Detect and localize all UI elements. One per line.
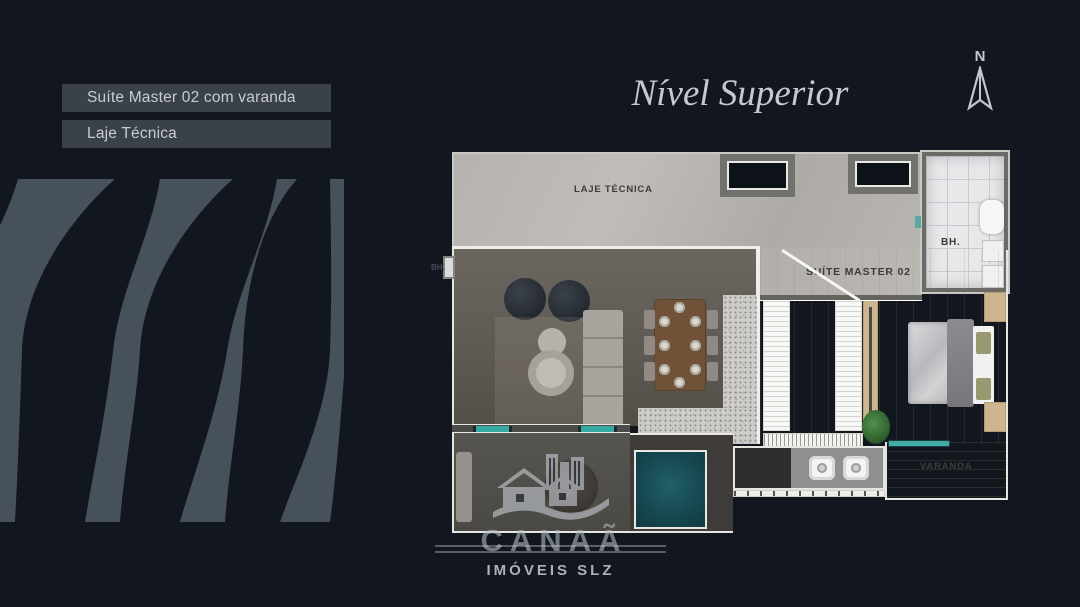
dining-chair [644,310,655,329]
sink [809,456,835,480]
wall [760,295,922,301]
counter-top [791,448,883,488]
wall [452,246,760,249]
pillow [976,332,991,354]
brand-houses-icon [491,448,611,524]
dining-chair [707,362,718,381]
north-compass: N [963,48,997,114]
railing [733,490,885,497]
window [443,256,455,279]
dining-chair [644,362,655,381]
varanda-label: VARANDA [920,461,972,472]
roof-opening-left [720,154,795,197]
watermark-logo: CANAÃ IMÓVEIS SLZ [443,448,658,579]
plant [862,410,890,444]
toilet [980,200,1004,234]
wardrobe [835,295,862,431]
dining-table [655,300,705,390]
bed-throw [947,319,974,407]
dining-chair [707,336,718,355]
page-title: Nível Superior [600,72,880,115]
north-arrow-icon [965,66,995,112]
nightstand [984,402,1006,432]
armchair [504,278,546,320]
sink [843,456,869,480]
nightstand [984,292,1006,322]
window-sill [473,426,512,432]
dresser-mirror [863,299,878,426]
wardrobe [763,295,790,431]
laje-tecnica-label: LAJE TÉCNICA [574,184,653,195]
window-sill [578,426,617,432]
roof-opening-right [848,154,918,194]
bathroom-left-label: BH. [431,263,445,272]
tag-laje-tecnica: Laje Técnica [62,120,331,148]
coffee-table [528,350,574,396]
bathroom-door-accent [915,216,921,228]
counter [733,446,885,490]
bathroom-label: BH. [941,237,961,248]
pillow [976,378,991,400]
dining-chair [644,336,655,355]
tag-suite-master: Suíte Master 02 com varanda [62,84,331,112]
brand-subtitle: IMÓVEIS SLZ [443,562,658,579]
sofa [583,310,623,426]
north-label: N [963,48,997,65]
dining-chair [707,310,718,329]
decorative-curves [0,177,344,523]
brand-name: CANAÃ [443,525,658,556]
